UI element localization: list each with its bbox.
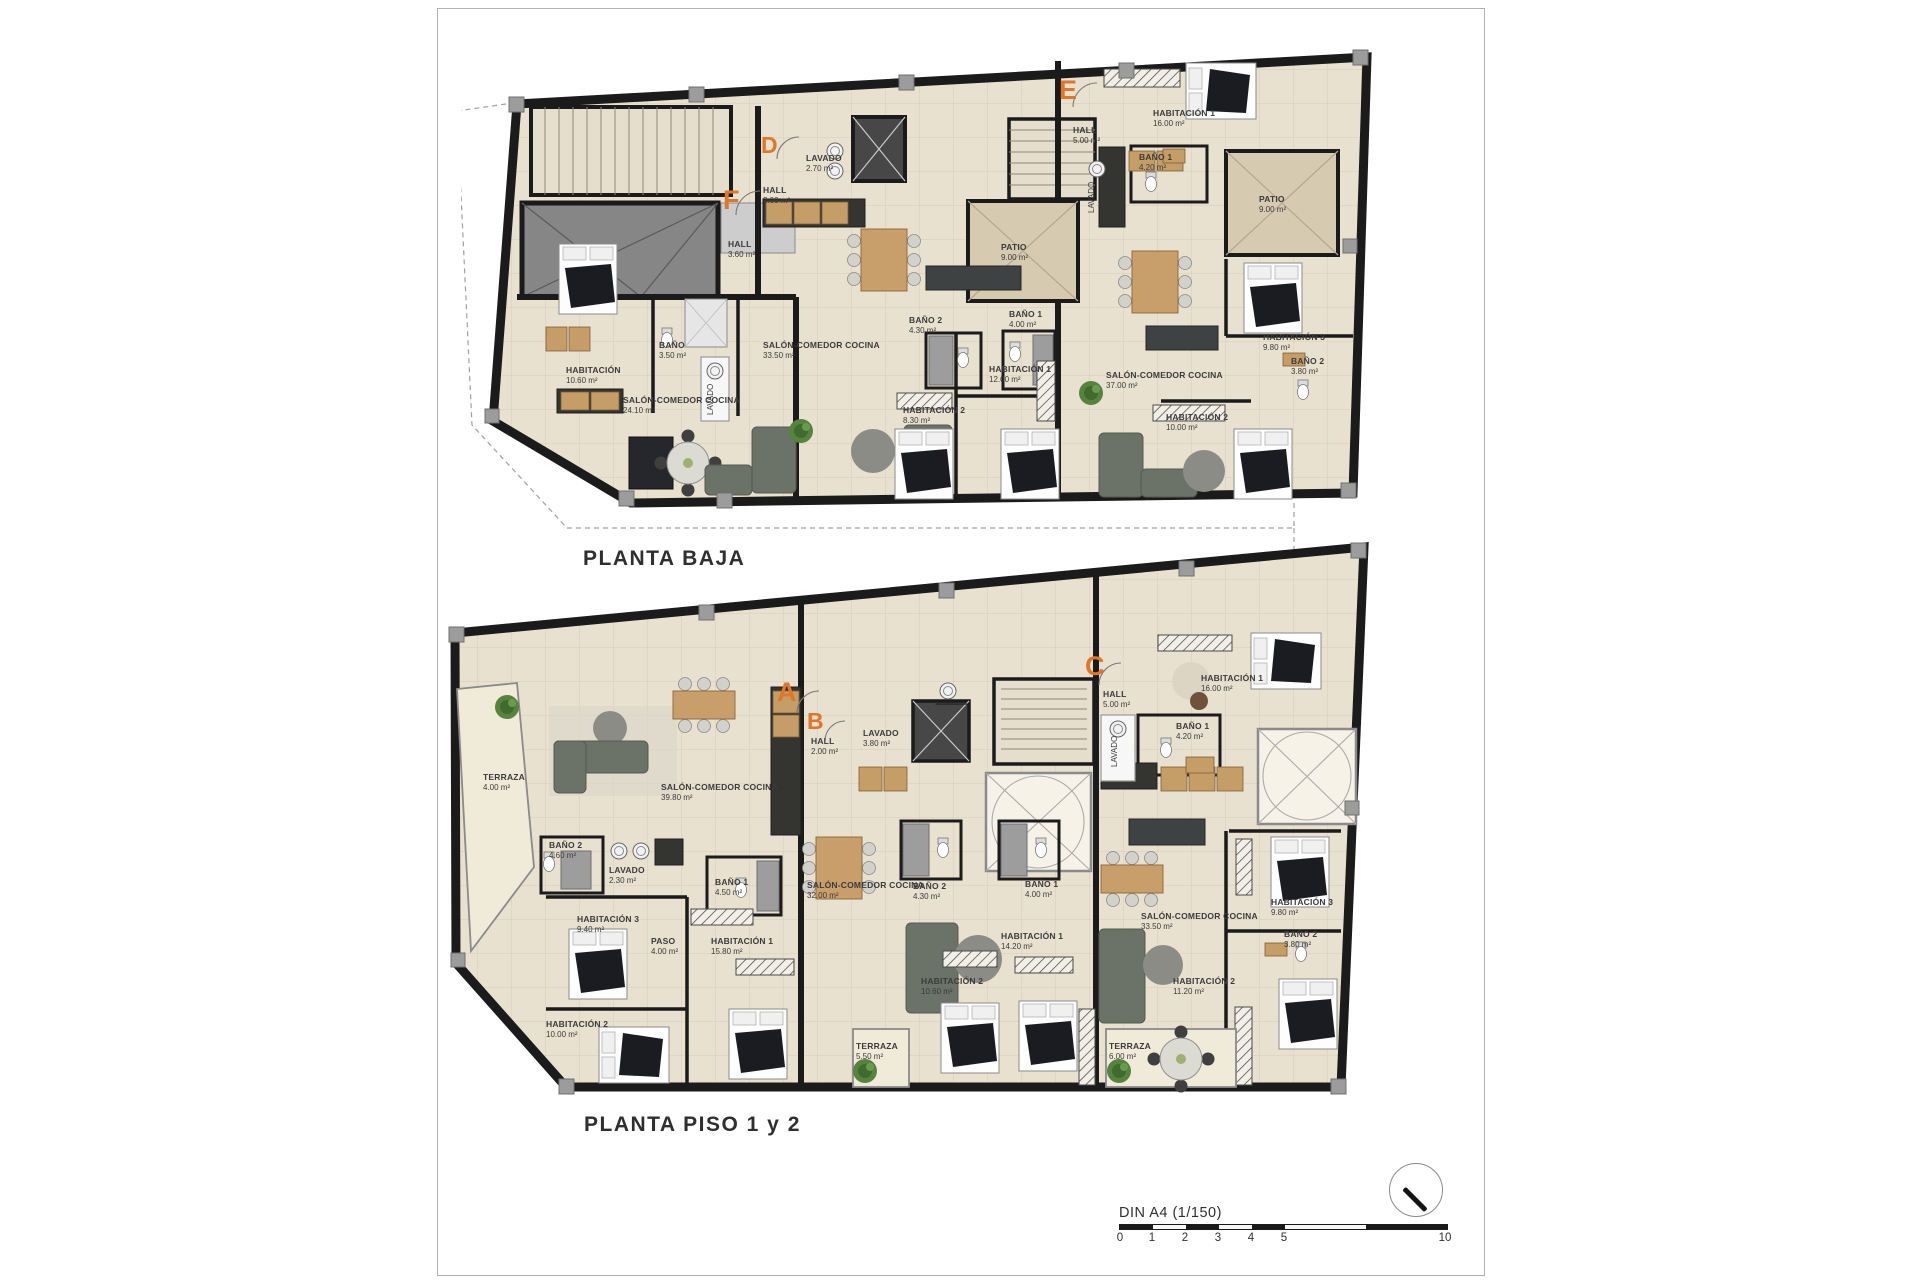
room-area: 4.30 m² [909, 326, 936, 335]
room-name: HABITACIÓN 1 [1153, 107, 1215, 118]
apartment-letter: B [807, 708, 824, 734]
room-area: 10.60 m² [566, 376, 598, 385]
room-name: BAÑO 2 [909, 315, 942, 325]
room-area: 4.30 m² [913, 892, 940, 901]
room-area: 4.20 m² [1176, 732, 1203, 741]
round-rug [851, 429, 895, 473]
apartment-letter: C [1085, 651, 1105, 681]
page: { "scale": { "label": "DIN A4 (1/150)", … [0, 0, 1920, 1280]
bed [729, 1009, 787, 1079]
apartment-letter: D [761, 132, 778, 158]
scale-ticks: 0 1 2 3 4 5 10 [1119, 1232, 1448, 1246]
garage-ramp [522, 203, 718, 297]
room-area: 3.80 m² [1284, 940, 1311, 949]
room-name: BAÑO 1 [1176, 721, 1209, 731]
bed [895, 429, 953, 499]
dining-table [848, 229, 921, 291]
bed [1244, 263, 1302, 333]
wardrobe [1104, 69, 1180, 87]
wardrobe [943, 951, 997, 967]
room-name: HALL [1073, 125, 1096, 135]
room-area: 2.30 m² [609, 876, 636, 885]
scale-tick: 10 [1439, 1232, 1452, 1244]
room-name: LAVADO [806, 153, 842, 163]
room-area: 2.00 m² [811, 747, 838, 756]
dining-table [1119, 251, 1192, 313]
room-name: SALÓN-COMEDOR COCINA [661, 781, 778, 792]
room-name: LAVADO [609, 865, 645, 875]
room-name: PASO [651, 936, 675, 946]
bed [1001, 429, 1059, 499]
room-name: HALL [811, 736, 834, 746]
room-area: 37.00 m² [1106, 381, 1138, 390]
room-name: PATIO [1001, 242, 1027, 252]
room-name: BAÑO 1 [1139, 152, 1172, 162]
room-area: 5.50 m² [856, 1052, 883, 1061]
sofa [1099, 929, 1145, 1023]
bed [1019, 1001, 1077, 1071]
washer-icon [707, 363, 723, 379]
room-name: SALÓN-COMEDOR COCINA [807, 879, 924, 890]
room-area: 5.00 m² [1103, 700, 1130, 709]
dresser [546, 327, 567, 351]
plant [495, 695, 519, 719]
room-area: 2.70 m² [806, 164, 833, 173]
room-name: BAÑO 2 [1284, 929, 1317, 939]
bed [559, 244, 617, 314]
room-area: 4.00 m² [651, 947, 678, 956]
room-name: SALÓN-COMEDOR COCINA [1106, 369, 1223, 380]
room-name: LAVADO [1110, 736, 1119, 767]
room-name: LAVADO [863, 728, 899, 738]
room-name: HABITACIÓN 1 [1201, 672, 1263, 683]
room-name: HALL [763, 185, 786, 195]
room-area: 10.00 m² [546, 1030, 578, 1039]
wardrobe [1236, 839, 1252, 895]
room-name: HABITACIÓN 2 [546, 1018, 608, 1029]
wardrobe [736, 959, 794, 975]
room-area: 9.80 m² [1263, 343, 1290, 352]
room-name: TERRAZA [856, 1041, 898, 1051]
sofa [554, 741, 586, 793]
room-area: 3.80 m² [1291, 367, 1318, 376]
bed [599, 1027, 669, 1083]
elevator [913, 701, 969, 761]
room-name: BAÑO 2 [549, 840, 582, 850]
sheet-frame: F D E LAVADO 2.70 m² HALL 2.00 m² HALL 3… [437, 8, 1485, 1276]
wardrobe [691, 909, 753, 925]
room-name: HABITACIÓN 2 [1173, 975, 1235, 986]
room-area: 14.20 m² [1001, 942, 1033, 951]
plan-title-planta-piso: PLANTA PISO 1 y 2 [584, 1113, 801, 1137]
room-area: 24.10 m² [623, 406, 655, 415]
lightwell-c [1258, 729, 1356, 824]
sofa [752, 427, 796, 493]
room-name: BAÑO 1 [1009, 309, 1042, 319]
wardrobe [1158, 635, 1232, 651]
dining-table [1101, 852, 1163, 907]
room-area: 9.00 m² [1001, 253, 1028, 262]
room-name: SALÓN-COMEDOR COCINA [623, 394, 740, 405]
bed [941, 1003, 999, 1073]
room-area: 4.60 m² [549, 851, 576, 860]
apartment-letter: E [1059, 75, 1077, 105]
washer-icon [1110, 721, 1126, 737]
room-area: 4.00 m² [1009, 320, 1036, 329]
wardrobe [1015, 957, 1073, 973]
room-area: 3.60 m² [728, 250, 755, 259]
washer-icon [940, 683, 956, 699]
room-area: 9.80 m² [1271, 908, 1298, 917]
room-area: 16.00 m² [1153, 119, 1185, 128]
armchair [1190, 692, 1208, 710]
room-area: 39.80 m² [661, 793, 693, 802]
north-needle [1402, 1187, 1427, 1212]
room-area: 32.00 m² [807, 891, 839, 900]
room-name: HABITACIÓN 1 [989, 363, 1051, 374]
room-area: 4.00 m² [483, 783, 510, 792]
bed [1279, 979, 1337, 1049]
scale-bar [1119, 1224, 1448, 1230]
floor-plan-planta-piso: A B C TERRAZA 4.00 m² SALÓN-COMEDOR COCI… [441, 526, 1401, 1116]
plant [853, 1059, 877, 1083]
room-name: TERRAZA [483, 772, 525, 782]
room-name: HABITACIÓN 3 [577, 913, 639, 924]
scale-tick: 1 [1149, 1232, 1155, 1244]
room-name: SALÓN-COMEDOR COCINA [1141, 910, 1258, 921]
room-name: BAÑO [659, 340, 685, 350]
room-name: BAÑO 2 [913, 881, 946, 891]
stair-core [531, 107, 731, 195]
room-area: 5.00 m² [1073, 136, 1100, 145]
wardrobe [1235, 1007, 1252, 1085]
kitchen-f [557, 389, 623, 413]
room-area: 3.80 m² [863, 739, 890, 748]
room-name: SALÓN-COMEDOR COCINA [763, 339, 880, 350]
scale-tick: 3 [1215, 1232, 1221, 1244]
plant [1079, 381, 1103, 405]
room-area: 10.00 m² [1166, 423, 1198, 432]
dining-table [673, 678, 735, 733]
scale-tick: 4 [1248, 1232, 1254, 1244]
room-name: HABITACIÓN 3 [1271, 896, 1333, 907]
apartment-letter: A [777, 677, 797, 707]
room-name: HALL [728, 239, 751, 249]
room-name: LAVADO [1087, 182, 1096, 213]
room-area: 11.20 m² [1173, 987, 1204, 996]
room-name: HABITACIÓN [566, 364, 621, 375]
room-area: 4.00 m² [1025, 890, 1052, 899]
room-area: 12.00 m² [989, 375, 1021, 384]
room-area: 4.50 m² [715, 888, 742, 897]
room-name: HABITACIÓN 3 [1263, 331, 1325, 342]
bed [569, 929, 627, 999]
room-area: 15.80 m² [711, 947, 743, 956]
room-name: HALL [1103, 689, 1126, 699]
room-name: HABITACIÓN 1 [711, 935, 773, 946]
room-name: HABITACIÓN 2 [1166, 411, 1228, 422]
sofa [1099, 433, 1143, 497]
room-area: 9.40 m² [577, 925, 604, 934]
room-name: BAÑO 2 [1291, 356, 1324, 366]
plant [789, 419, 813, 443]
scale-tick: 2 [1182, 1232, 1188, 1244]
room-area: 4.20 m² [1139, 163, 1166, 172]
washer-icon [1089, 161, 1105, 177]
room-area: 8.30 m² [903, 416, 930, 425]
dresser [569, 327, 590, 351]
bed [1234, 429, 1292, 499]
room-area: 33.50 m² [1141, 922, 1173, 931]
north-arrow-icon [1389, 1163, 1443, 1217]
room-area: 33.50 m² [763, 351, 795, 360]
room-name: PATIO [1259, 194, 1285, 204]
wardrobe [1079, 1009, 1095, 1085]
kitchen-a [771, 687, 801, 835]
stair-core [994, 679, 1094, 764]
room-area: 2.00 m² [763, 196, 790, 205]
scale-tick: 5 [1281, 1232, 1287, 1244]
plant [1107, 1059, 1131, 1083]
room-area: 6.00 m² [1109, 1052, 1136, 1061]
room-area: 3.50 m² [659, 351, 686, 360]
elevator [853, 117, 905, 181]
round-rug [1183, 450, 1225, 492]
scale-tick: 0 [1117, 1232, 1123, 1244]
round-rug [593, 711, 627, 745]
apartment-letter: F [723, 185, 740, 215]
room-area: 16.00 m² [1201, 684, 1233, 693]
sofa [906, 923, 958, 1013]
room-area: 10.60 m² [921, 987, 953, 996]
room-name: HABITACIÓN 2 [903, 404, 965, 415]
sofa [705, 465, 752, 495]
room-area: 9.00 m² [1259, 205, 1286, 214]
room-name: BAÑO 1 [1025, 879, 1058, 889]
room-name: HABITACIÓN 1 [1001, 930, 1063, 941]
room-name: HABITACIÓN 2 [921, 975, 983, 986]
floor-plan-planta-baja: F D E LAVADO 2.70 m² HALL 2.00 m² HALL 3… [461, 41, 1401, 531]
room-name: BAÑO 1 [715, 877, 748, 887]
room-name: TERRAZA [1109, 1041, 1151, 1051]
